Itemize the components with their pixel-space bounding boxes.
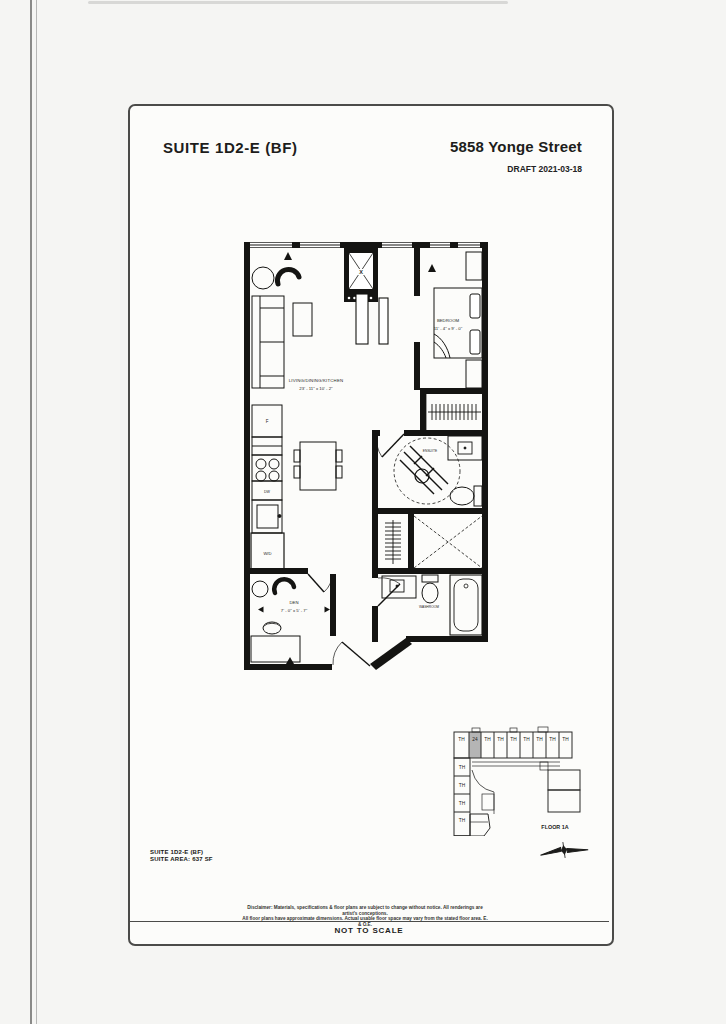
svg-text:TH: TH [497,737,504,742]
doors [308,294,404,666]
scan-edge-artifact [88,1,508,4]
keyplan-drawing: TH 24 TH TH TH TH TH TH TH TH TH TH TH F… [448,718,596,836]
suite-title: SUITE 1D2-E (BF) [163,139,298,156]
floorplan-drawing: X [236,238,492,674]
ensuite-fixtures [394,436,482,506]
living-room-label: LIVING/DINING/KITCHEN [289,378,344,383]
footer-divider-line [129,921,609,922]
svg-text:24: 24 [472,737,478,742]
washer-dryer-label: W/D [263,551,271,556]
svg-text:TH: TH [536,737,543,742]
suite-info-line1: SUITE 1D2-E (BF) [150,849,213,856]
den-dims: 7' - 0" x 5' - 7" [281,608,308,613]
svg-text:TH: TH [459,801,466,806]
svg-text:TH: TH [459,783,466,788]
scanned-floorplan-page: SUITE 1D2-E (BF) 5858 Yonge Street DRAFT… [0,0,726,1024]
living-room-dims: 23' - 11" x 10' - 2" [299,386,333,391]
svg-text:TH: TH [458,737,465,742]
fridge-label: F [266,419,269,424]
north-arrow-icon [538,838,590,862]
den-label: DEN [289,600,298,605]
svg-text:TH: TH [459,765,466,770]
scan-fold-line [30,0,32,1024]
suite-info-block: SUITE 1D2-E (BF) SUITE AREA: 637 SF [150,849,213,863]
svg-text:TH: TH [549,737,556,742]
building-address: 5858 Yonge Street [400,138,582,155]
not-to-scale-label: NOT TO SCALE [128,926,610,935]
svg-text:TH: TH [523,737,530,742]
keyplan-outline [454,727,580,836]
highlighted-unit-cell [469,732,481,758]
suite-info-line2: SUITE AREA: 637 SF [150,856,213,863]
dishwasher-label: DW [264,490,271,494]
bedroom-dims: 11' - 4" x 9' - 0" [434,326,463,331]
hall-closets [385,516,482,568]
shaft-label: X [359,269,363,275]
draft-date: DRAFT 2021-03-18 [400,164,582,174]
svg-text:TH: TH [484,737,491,742]
scan-fold-line-2 [36,0,37,1024]
svg-text:TH: TH [510,737,517,742]
floor-label: FLOOR 1A [541,824,568,830]
svg-text:TH: TH [562,737,569,742]
washroom-label: WASHROOM [419,605,439,609]
bedroom-label: BEDROOM [437,318,460,323]
svg-text:TH: TH [459,818,466,823]
ensuite-label: ENSUITE [423,449,438,453]
disclaimer-text: Disclaimer: Materials, specifications & … [240,905,490,927]
disclaimer-line1: Disclaimer: Materials, specifications & … [240,905,490,916]
bedroom-closet [426,394,481,430]
den-furniture [251,579,300,662]
